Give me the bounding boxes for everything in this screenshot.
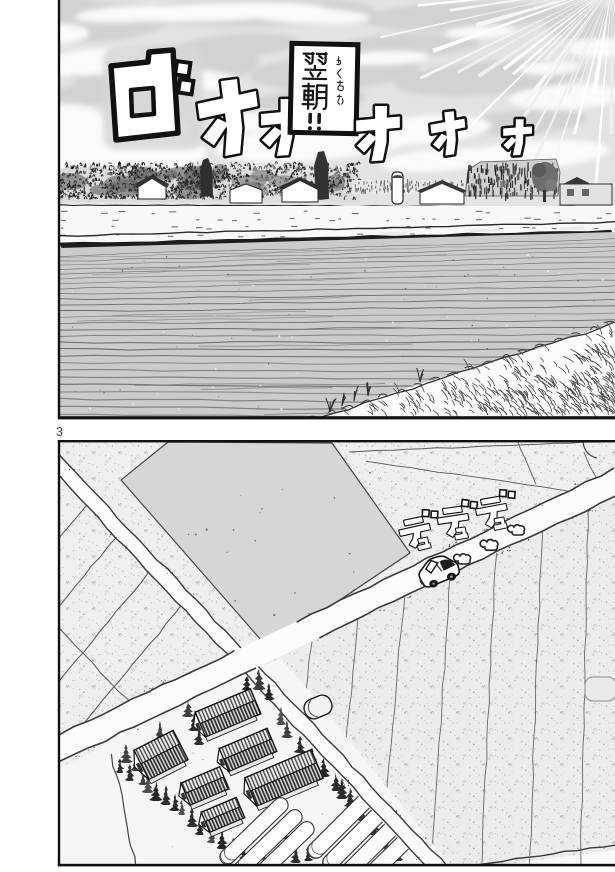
svg-text:3: 3	[56, 425, 63, 439]
